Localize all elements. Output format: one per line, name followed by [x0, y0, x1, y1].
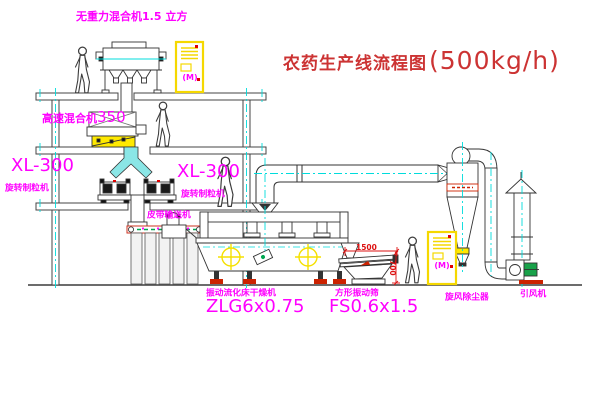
high-speed-mixer-size: 350 [97, 108, 126, 126]
high-speed-mixer-name: 高速混合机 [42, 112, 97, 125]
cabinet1-panel-glyph: (M) [179, 73, 201, 82]
granulator-right-model-label: XL-300 [177, 163, 240, 181]
cyclone-label: 旋风除尘器 [445, 293, 489, 302]
screen-width-dimension: 1500 [356, 243, 377, 252]
granulator-left-model-label: XL-300 [11, 157, 74, 175]
cabinet2-panel-glyph: (M) [431, 261, 453, 270]
cad-process-flow-diagram: 无重力混合机1.5 立方 农药生产线流程图 (500kg/h) 高速混合机350… [0, 0, 600, 403]
granulator-right-name-label: 旋转制粒机 [181, 190, 225, 199]
control-cabinet-2 [428, 232, 456, 284]
title-text: 农药生产线流程图 [283, 49, 427, 74]
belt-conveyor-label: 皮带输送机 [147, 211, 191, 220]
gravity-free-mixer [96, 42, 166, 113]
screen-model-label: FS0.6x1.5 [329, 298, 418, 316]
fan-label: 引风机 [520, 290, 546, 299]
gravity-mixer-label: 无重力混合机1.5 立方 [76, 11, 187, 22]
dryer-model-label: ZLG6x0.75 [206, 298, 305, 316]
diagram-title: 农药生产线流程图 (500kg/h) [283, 46, 560, 75]
granulator-left [98, 179, 132, 203]
granulator-discharge-pipe [128, 195, 147, 226]
person-ground [405, 237, 419, 283]
granulator-right [142, 179, 176, 203]
person-middle-floor [156, 102, 170, 146]
control-cabinet-1 [176, 42, 203, 92]
cyclone-outlet-pipe [485, 152, 507, 279]
title-capacity: (500kg/h) [429, 46, 560, 75]
induced-draft-fan [506, 260, 543, 284]
granulator-left-name-label: 旋转制粒机 [5, 184, 49, 193]
high-speed-mixer-label: 高速混合机350 [42, 109, 126, 125]
screen-height-dimension: 700 [388, 260, 397, 276]
person-top-floor [75, 47, 89, 93]
